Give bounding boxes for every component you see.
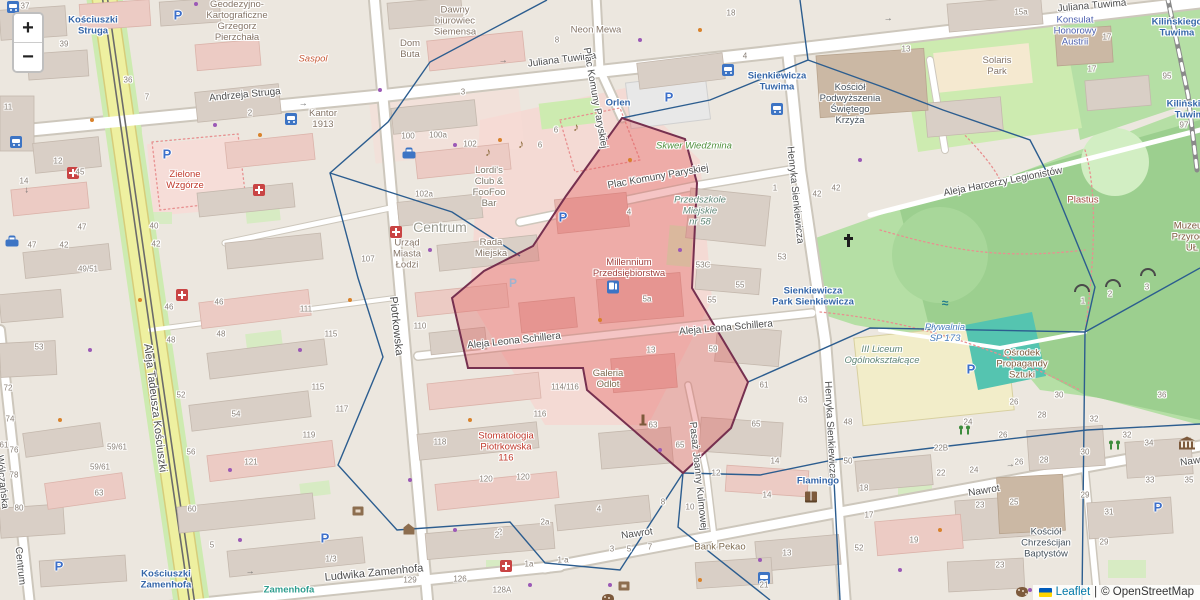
openstreetmap-link[interactable]: © OpenStreetMap — [1101, 586, 1194, 598]
boundary-line — [748, 268, 1200, 382]
boundary-line — [330, 173, 520, 256]
zoom-in-button[interactable]: + — [14, 14, 42, 43]
attribution-bar: Leaflet | © OpenStreetMap — [1033, 585, 1200, 600]
vector-overlays — [0, 0, 1200, 600]
boundary-line — [678, 473, 770, 600]
zoom-out-button[interactable]: − — [14, 43, 42, 71]
leaflet-link[interactable]: Leaflet — [1056, 586, 1091, 598]
zoom-control: + − — [12, 12, 44, 73]
ukraine-flag-icon — [1039, 588, 1052, 597]
boundary-line — [622, 0, 808, 118]
boundary-line — [833, 460, 840, 600]
leaflet-map[interactable]: PPPPPPPPP♪♪♪≈→→→→→→ Andrzeja StrugaJulia… — [0, 0, 1200, 600]
boundary-line — [683, 424, 1200, 475]
attribution-separator: | — [1094, 586, 1097, 598]
highlighted-area-polygon[interactable] — [452, 118, 748, 473]
